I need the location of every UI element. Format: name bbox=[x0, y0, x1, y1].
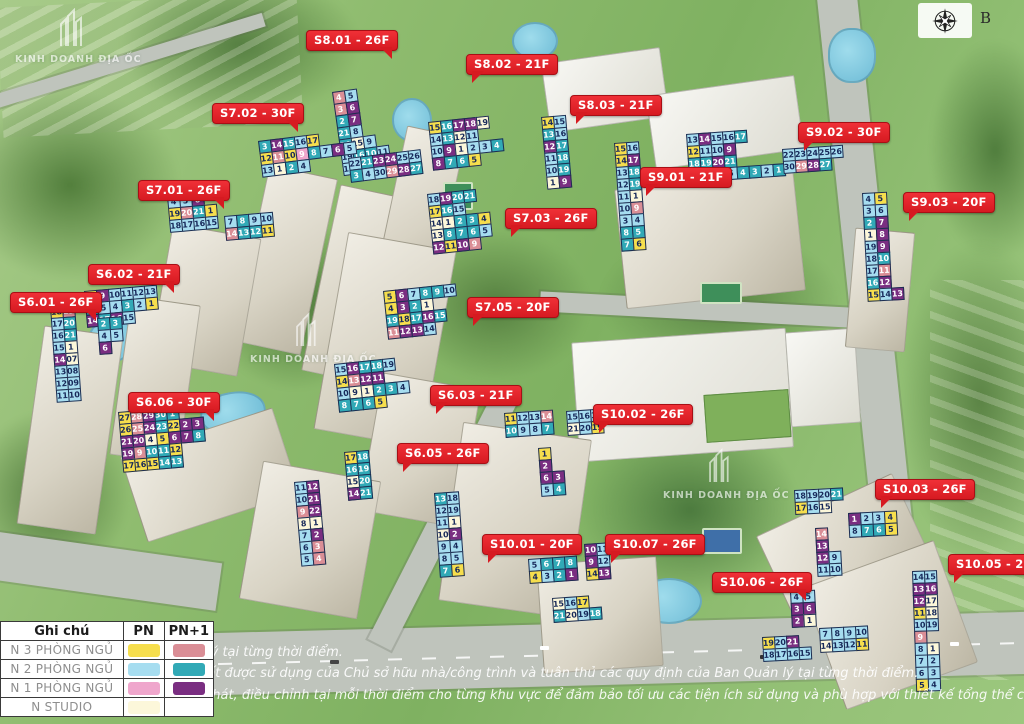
building-badge[interactable]: S10.03 - 26F bbox=[875, 479, 975, 500]
legend-color-swatch bbox=[128, 663, 160, 676]
unit-cell[interactable]: 15 bbox=[121, 310, 135, 324]
legend-color-swatch bbox=[128, 682, 160, 695]
unit-grid-S10.02-a: 1112131410987 bbox=[504, 410, 554, 437]
tower-block bbox=[232, 165, 338, 356]
tree-patch bbox=[900, 240, 1024, 560]
legend-swatch-cell bbox=[164, 660, 213, 679]
unit-cell[interactable]: 4 bbox=[927, 678, 940, 691]
unit-grid-S6.01-a: 1819172016211511407130812091110 bbox=[50, 304, 81, 401]
unit-cell[interactable]: 6 bbox=[632, 237, 646, 251]
unit-cell[interactable]: 11 bbox=[855, 637, 869, 651]
unit-cell[interactable]: 13 bbox=[597, 566, 611, 580]
unit-grid-S7.03: 181920211716151412341387651211109 bbox=[427, 188, 493, 254]
building-badge[interactable]: S6.06 - 30F bbox=[128, 392, 220, 413]
unit-cell[interactable]: 1 bbox=[564, 567, 578, 581]
unit-cell[interactable]: 5 bbox=[109, 328, 123, 342]
legend-swatch-cell bbox=[123, 660, 164, 679]
legend-header-pn: PN bbox=[123, 622, 164, 641]
unit-grid-S10.05: 14151316121711181019981726354 bbox=[912, 570, 940, 691]
unit-cell[interactable]: 5 bbox=[467, 152, 481, 166]
unit-cell[interactable]: 21 bbox=[359, 485, 373, 499]
unit-grid-row: 171615 bbox=[795, 499, 844, 513]
unit-cell[interactable]: 4 bbox=[396, 380, 410, 394]
brand-watermark-text: KINH DOANH ĐỊA ỐC bbox=[15, 54, 125, 65]
building-badge[interactable]: S9.03 - 20F bbox=[903, 192, 995, 213]
unit-grid-S10.03-b: 12348765 bbox=[848, 510, 897, 536]
unit-cell[interactable]: 1 bbox=[144, 296, 158, 310]
disclaimer-line-3: phát, điều chỉnh tại mỗi thời điểm cho t… bbox=[204, 688, 1024, 703]
unit-grid-S10.01: 13181219111102948576 bbox=[434, 491, 464, 576]
unit-grid-S10.02-c: 126354 bbox=[538, 446, 565, 496]
building-badge[interactable]: S8.01 - 26F bbox=[306, 30, 398, 51]
mall-annex bbox=[785, 328, 861, 428]
unit-grid-row: 10987 bbox=[505, 422, 554, 437]
building-badge[interactable]: S7.03 - 26F bbox=[505, 208, 597, 229]
unit-grid-row: 1413 bbox=[586, 566, 611, 580]
legend-header-note: Ghi chú bbox=[1, 622, 124, 641]
unit-cell[interactable]: 9 bbox=[467, 236, 481, 250]
lake bbox=[828, 28, 876, 83]
unit-grid-row: 30292827 bbox=[783, 157, 844, 173]
unit-grid-S9.03: 45362718199181017111612151413 bbox=[862, 191, 904, 301]
lake bbox=[392, 98, 432, 142]
unit-grid-row: 1421 bbox=[347, 486, 372, 500]
unit-grid-row: 6 bbox=[99, 340, 124, 354]
building-badge[interactable]: S10.01 - 20F bbox=[482, 534, 582, 555]
unit-grid-S7.01-b: 7891014131211 bbox=[224, 212, 274, 240]
compass-north-label: B bbox=[980, 9, 991, 27]
building-badge[interactable]: S8.03 - 21F bbox=[570, 95, 662, 116]
unit-cell[interactable]: 4 bbox=[490, 138, 504, 152]
tree-patch bbox=[930, 40, 1024, 260]
unit-grid-row: 54 bbox=[916, 678, 940, 691]
building-badge[interactable]: S6.05 - 26F bbox=[397, 443, 489, 464]
unit-cell[interactable]: 17 bbox=[733, 129, 747, 143]
road-top-left bbox=[0, 13, 266, 111]
unit-cell[interactable]: 8 bbox=[191, 428, 205, 442]
legend-row: N STUDIO bbox=[1, 698, 214, 717]
unit-grid-S10.03-c: 14131291110 bbox=[815, 527, 841, 576]
legend-color-swatch bbox=[128, 701, 160, 714]
unit-cell[interactable]: 4 bbox=[296, 158, 310, 172]
building-badge[interactable]: S6.01 - 26F bbox=[10, 292, 102, 313]
building-badge[interactable]: S7.01 - 26F bbox=[138, 180, 230, 201]
unit-grid-S10.03-a: 18192021171615 bbox=[794, 487, 843, 513]
road-left-highway bbox=[0, 527, 222, 611]
basketball-court bbox=[702, 528, 742, 554]
building-badge[interactable]: S10.02 - 26F bbox=[593, 404, 693, 425]
mall-green-roof bbox=[703, 389, 791, 443]
unit-cell[interactable]: 15 bbox=[798, 646, 812, 660]
unit-grid-row: 14131211 bbox=[820, 637, 869, 651]
tree-patch bbox=[600, 230, 840, 370]
unit-grid-S6.05-a: 1112102192281726354 bbox=[294, 480, 325, 566]
unit-grid-row: 54 bbox=[300, 552, 325, 566]
unit-cell[interactable]: 6 bbox=[98, 341, 112, 355]
building-badge[interactable]: S10.06 - 26F bbox=[712, 572, 812, 593]
unit-cell[interactable]: 15 bbox=[818, 500, 832, 514]
unit-grid-row: 151413 bbox=[867, 287, 904, 301]
unit-grid-row: 76 bbox=[439, 563, 464, 577]
unit-cell[interactable]: 13 bbox=[890, 286, 904, 300]
tree-patch bbox=[120, 0, 360, 120]
building-badge[interactable]: S8.02 - 21F bbox=[466, 54, 558, 75]
unit-grid-S6.03: 15161718191413121110912348765 bbox=[334, 356, 411, 411]
legend-row-label: N 2 PHÒNG NGỦ bbox=[1, 660, 124, 679]
tennis-court bbox=[700, 282, 742, 304]
building-badge[interactable]: S9.01 - 21F bbox=[640, 167, 732, 188]
legend-header-row: Ghi chú PN PN+1 bbox=[1, 622, 214, 641]
legend-row: N 1 PHÒNG NGỦ bbox=[1, 679, 214, 698]
unit-grid-row: 21 bbox=[791, 614, 816, 627]
unit-cell[interactable]: 10 bbox=[442, 283, 456, 297]
unit-grid-row: 4321 bbox=[529, 568, 578, 583]
unit-grid-S10.07-c: 15161721201918 bbox=[552, 595, 602, 622]
building-badge[interactable]: S6.03 - 21F bbox=[430, 385, 522, 406]
legend-swatch-cell bbox=[123, 679, 164, 698]
unit-grid-S6.05-b: 1718161915201421 bbox=[344, 450, 372, 500]
building-badge[interactable]: S7.05 - 20F bbox=[467, 297, 559, 318]
road-mall-north bbox=[540, 291, 871, 328]
tower-block bbox=[301, 184, 414, 385]
legend-swatch-cell bbox=[123, 641, 164, 660]
unit-grid-row: 8765 bbox=[849, 522, 898, 536]
legend-color-swatch bbox=[173, 663, 205, 676]
unit-grid-S6.01-b: 23456 bbox=[97, 316, 123, 354]
legend-swatch-cell bbox=[123, 698, 164, 717]
legend-color-swatch bbox=[173, 682, 205, 695]
unit-cell[interactable]: 11 bbox=[260, 223, 274, 237]
brand-watermark: KINH DOANH ĐỊA ỐC bbox=[250, 312, 360, 365]
tower-block bbox=[149, 223, 262, 377]
unit-cell[interactable]: 13 bbox=[169, 454, 183, 468]
unit-cell[interactable]: 5 bbox=[373, 394, 387, 408]
unit-grid-S7.05: 56789104321191817161511121314 bbox=[383, 283, 460, 338]
car bbox=[540, 646, 549, 650]
building-badge[interactable]: S9.02 - 30F bbox=[798, 122, 890, 143]
brand-logo-icon bbox=[290, 312, 320, 350]
lake bbox=[636, 578, 702, 624]
building-badge[interactable]: S6.02 - 21F bbox=[88, 264, 180, 285]
brand-logo-icon bbox=[703, 448, 733, 486]
compass-rose-icon bbox=[930, 6, 960, 36]
brand-logo-icon bbox=[53, 8, 87, 50]
mall-building bbox=[571, 328, 794, 463]
tower-block bbox=[313, 232, 456, 448]
legend-swatch-cell bbox=[164, 679, 213, 698]
building-badge[interactable]: S10.05 - 20F bbox=[948, 554, 1024, 575]
unit-cell[interactable]: 9 bbox=[558, 174, 572, 188]
unit-cell[interactable]: 14 bbox=[422, 321, 436, 335]
unit-grid-S8.02: 15161718191413121110912348765 bbox=[428, 114, 505, 169]
unit-cell[interactable]: 1 bbox=[803, 613, 817, 627]
unit-grid-row: 1110 bbox=[817, 563, 842, 576]
legend-table: Ghi chú PN PN+1 N 3 PHÒNG NGỦN 2 PHÒNG N… bbox=[0, 621, 214, 717]
unit-grid-S9.01-w: 1516141713181219111109348576 bbox=[614, 141, 645, 250]
legend-row-label: N 1 PHÒNG NGỦ bbox=[1, 679, 124, 698]
legend-row-label: N 3 PHÒNG NGỦ bbox=[1, 641, 124, 660]
unit-grid-S10.07-a: 56784321 bbox=[528, 556, 578, 583]
brand-watermark: KINH DOANH ĐỊA ỐC bbox=[663, 448, 773, 501]
brand-watermark-text: KINH DOANH ĐỊA ỐC bbox=[663, 490, 773, 501]
unit-grid-row: 76 bbox=[621, 237, 646, 251]
unit-cell[interactable]: 5 bbox=[342, 141, 356, 155]
unit-cell[interactable]: 15 bbox=[204, 215, 218, 229]
building-badge[interactable]: S10.07 - 26F bbox=[605, 534, 705, 555]
unit-cell[interactable]: 27 bbox=[408, 161, 422, 175]
unit-grid-row: 19 bbox=[546, 175, 571, 189]
unit-cell[interactable]: 5 bbox=[884, 522, 898, 536]
unit-cell[interactable]: 26 bbox=[829, 144, 843, 158]
legend-swatch-cell bbox=[164, 641, 213, 660]
legend-header-pn1: PN+1 bbox=[164, 622, 213, 641]
legend-row: N 2 PHÒNG NGỦ bbox=[1, 660, 214, 679]
masterplan-map: KINH DOANH ĐỊA ỐC KINH DOANH ĐỊA ỐC KINH… bbox=[0, 0, 1024, 724]
tree-patch bbox=[0, 410, 130, 580]
unit-cell[interactable]: 6 bbox=[450, 563, 464, 577]
legend-color-swatch bbox=[173, 644, 205, 657]
car bbox=[950, 642, 959, 646]
unit-cell[interactable]: 4 bbox=[552, 482, 566, 496]
unit-cell[interactable]: 19 bbox=[925, 618, 938, 631]
unit-cell[interactable]: 21 bbox=[829, 487, 843, 501]
compass-rose bbox=[918, 3, 972, 38]
car bbox=[330, 660, 339, 664]
legend-row: N 3 PHÒNG NGỦ bbox=[1, 641, 214, 660]
unit-grid-row: 14131211 bbox=[225, 224, 274, 240]
unit-cell[interactable]: 10 bbox=[67, 388, 81, 402]
disclaimer-line-1: lý tại từng thời điểm. bbox=[207, 645, 343, 660]
legend-color-swatch bbox=[128, 644, 160, 657]
unit-grid-S10.06-b: 7891014131211 bbox=[819, 625, 868, 651]
legend-row-label: N STUDIO bbox=[1, 698, 124, 717]
building-badge[interactable]: S7.02 - 30F bbox=[212, 103, 304, 124]
unit-cell[interactable]: 4 bbox=[312, 551, 326, 565]
unit-grid-row: 1110 bbox=[56, 388, 81, 402]
unit-grid-row: 18171615 bbox=[763, 646, 812, 660]
unit-grid-row: 54 bbox=[541, 482, 566, 496]
brand-watermark: KINH DOANH ĐỊA ỐC bbox=[15, 8, 125, 65]
unit-cell[interactable]: 27 bbox=[818, 157, 832, 171]
unit-grid-S10.06-c: 19202118171615 bbox=[762, 634, 811, 660]
unit-cell[interactable]: 7 bbox=[540, 421, 554, 435]
legend-swatch-cell bbox=[164, 698, 213, 717]
unit-cell[interactable]: 18 bbox=[588, 606, 602, 620]
unit-grid-S8.03: 1415131612171118101919 bbox=[541, 115, 571, 189]
disclaimer-line-2: đất được sử dụng của Chủ sở hữu nhà/công… bbox=[199, 666, 918, 681]
unit-grid-row: 18171615 bbox=[169, 216, 218, 232]
unit-grid-S6.06: 2728293012625242322232120456781991011121… bbox=[118, 405, 207, 472]
unit-cell[interactable]: 10 bbox=[828, 562, 842, 576]
unit-grid-row: 21201918 bbox=[553, 607, 602, 622]
